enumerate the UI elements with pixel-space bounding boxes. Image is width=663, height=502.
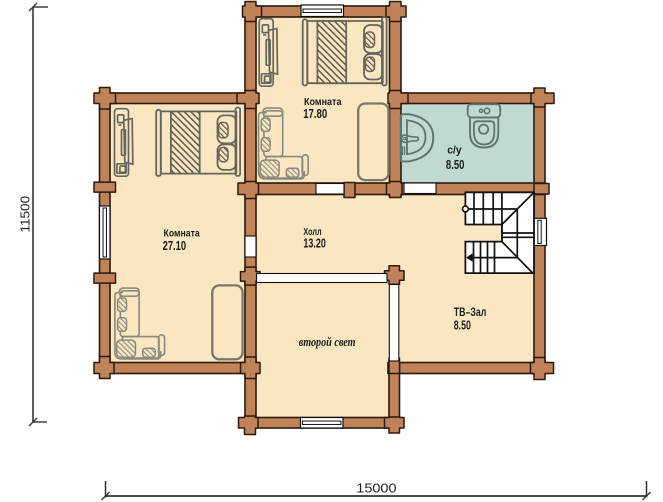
svg-text:27.10: 27.10 <box>163 239 187 253</box>
svg-text:второй свет: второй свет <box>299 335 356 349</box>
svg-text:Комната: Комната <box>164 228 200 240</box>
svg-text:17.80: 17.80 <box>303 107 327 121</box>
svg-text:15000: 15000 <box>356 481 396 496</box>
svg-text:с/у: с/у <box>447 145 462 157</box>
svg-text:ТВ–Зал: ТВ–Зал <box>454 307 487 319</box>
svg-text:8.50: 8.50 <box>446 158 465 172</box>
svg-text:11500: 11500 <box>18 196 33 233</box>
svg-text:13.20: 13.20 <box>303 237 325 251</box>
svg-text:Комната: Комната <box>304 96 342 108</box>
svg-text:8.50: 8.50 <box>454 319 471 333</box>
